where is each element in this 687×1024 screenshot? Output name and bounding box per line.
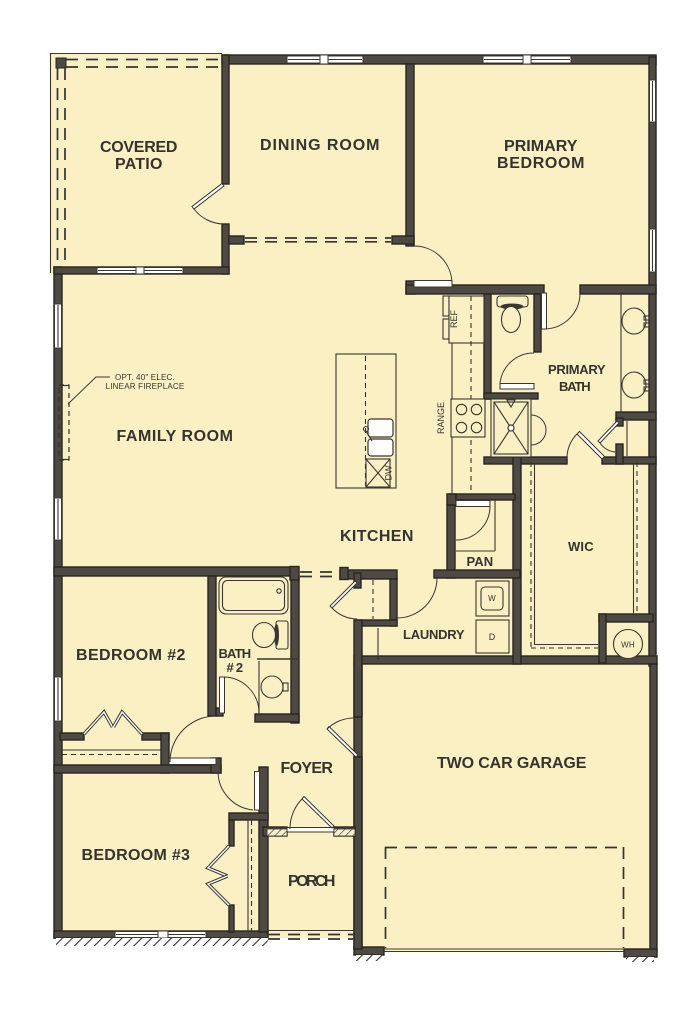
svg-text:WH: WH [621,641,635,650]
svg-text:#2: #2 [227,660,244,675]
svg-text:BATH: BATH [559,379,591,394]
svg-text:PRIMARY: PRIMARY [504,138,578,155]
svg-text:PATIO: PATIO [115,156,163,173]
svg-text:BEDROOM: BEDROOM [497,155,585,172]
svg-text:RANGE: RANGE [436,402,446,434]
svg-text:BEDROOM #3: BEDROOM #3 [82,847,191,864]
svg-text:KITCHEN: KITCHEN [340,528,414,545]
svg-text:TWO CAR GARAGE: TWO CAR GARAGE [437,755,587,772]
svg-text:REF: REF [449,309,459,328]
svg-text:OPT. 40" ELEC.: OPT. 40" ELEC. [115,373,175,382]
svg-text:COVERED: COVERED [100,139,178,156]
svg-text:FAMILY ROOM: FAMILY ROOM [117,428,234,445]
svg-text:BEDROOM #2: BEDROOM #2 [76,647,186,664]
svg-text:PAN: PAN [467,554,494,569]
svg-text:LAUNDRY: LAUNDRY [403,627,465,642]
svg-text:D: D [489,632,496,642]
svg-text:PORCH: PORCH [288,873,336,890]
svg-text:FOYER: FOYER [281,760,334,777]
svg-text:DINING ROOM: DINING ROOM [260,137,380,154]
svg-text:WIC: WIC [568,539,594,554]
svg-text:LINEAR FIREPLACE: LINEAR FIREPLACE [106,382,185,391]
svg-text:DW: DW [384,465,394,480]
svg-text:PRIMARY: PRIMARY [548,362,606,377]
svg-text:W: W [488,594,496,603]
svg-text:BATH: BATH [219,646,252,661]
